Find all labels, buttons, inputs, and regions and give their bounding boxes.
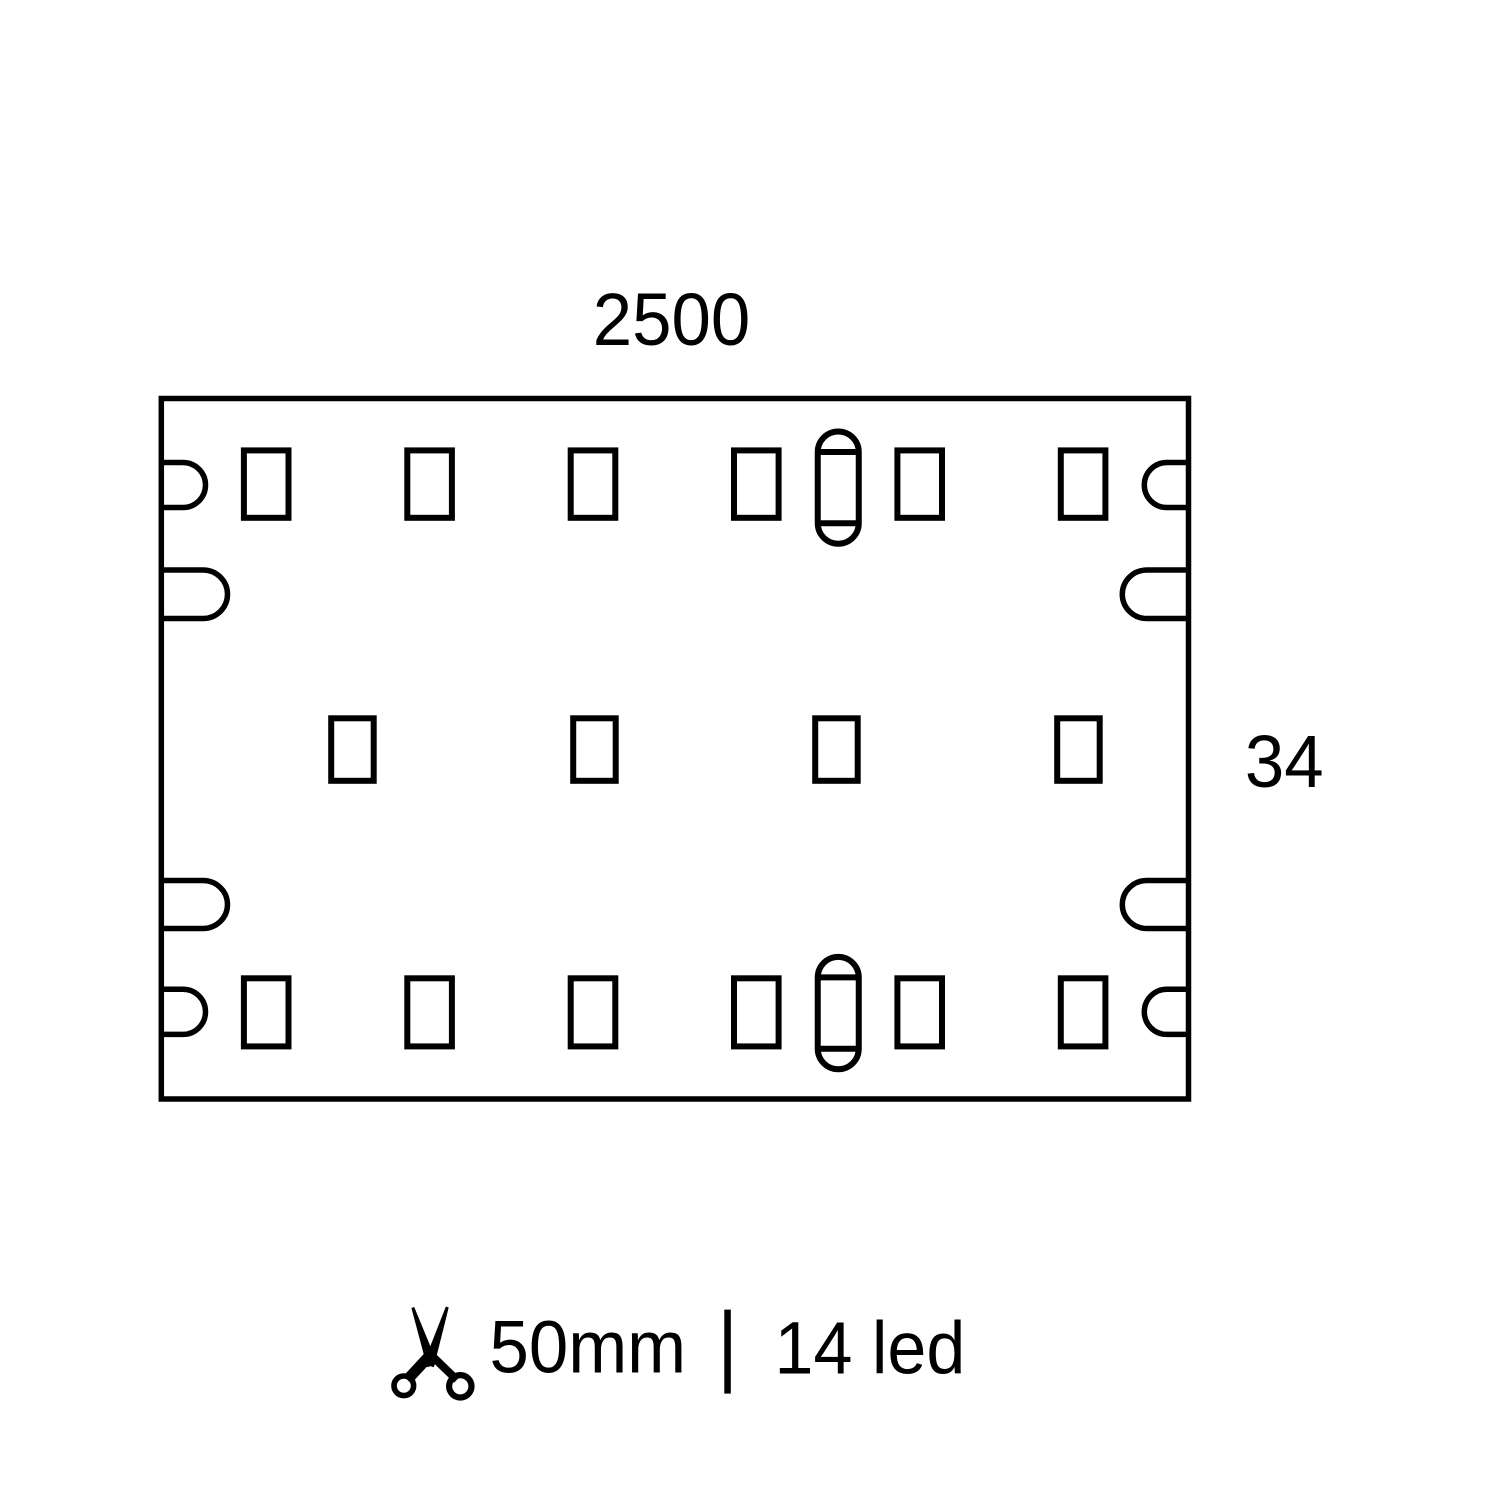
svg-text:14 led: 14 led — [775, 1308, 966, 1390]
svg-text:34: 34 — [1245, 720, 1324, 803]
svg-text:2500: 2500 — [593, 278, 750, 361]
svg-text:50mm: 50mm — [489, 1306, 686, 1389]
